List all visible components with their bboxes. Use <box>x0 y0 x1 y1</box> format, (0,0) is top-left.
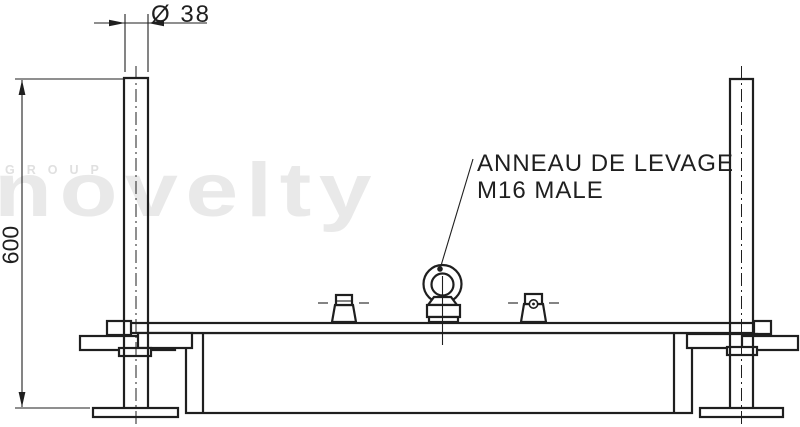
right-post <box>730 79 753 408</box>
twistlock-left <box>318 295 369 322</box>
callout-line2: M16 MALE <box>477 177 734 204</box>
technical-drawing-canvas: GROUP novelty <box>0 0 800 427</box>
callout-text: ANNEAU DE LEVAGE M16 MALE <box>477 150 734 204</box>
platform-plate <box>107 321 771 335</box>
height-dimension-label: 600 <box>0 226 25 264</box>
plate-end-block-right <box>754 321 771 334</box>
plate-end-block-left <box>107 321 131 335</box>
left-post <box>124 78 148 408</box>
twistlock-right <box>508 294 559 322</box>
right-leg-assembly <box>687 334 798 417</box>
height-dimension <box>15 79 123 408</box>
callout-line1: ANNEAU DE LEVAGE <box>477 150 734 177</box>
drawing-svg <box>0 0 800 427</box>
callout-leader-line <box>437 159 473 272</box>
base-frame <box>186 333 692 413</box>
diameter-dimension-label: Ø 38 <box>151 1 211 29</box>
